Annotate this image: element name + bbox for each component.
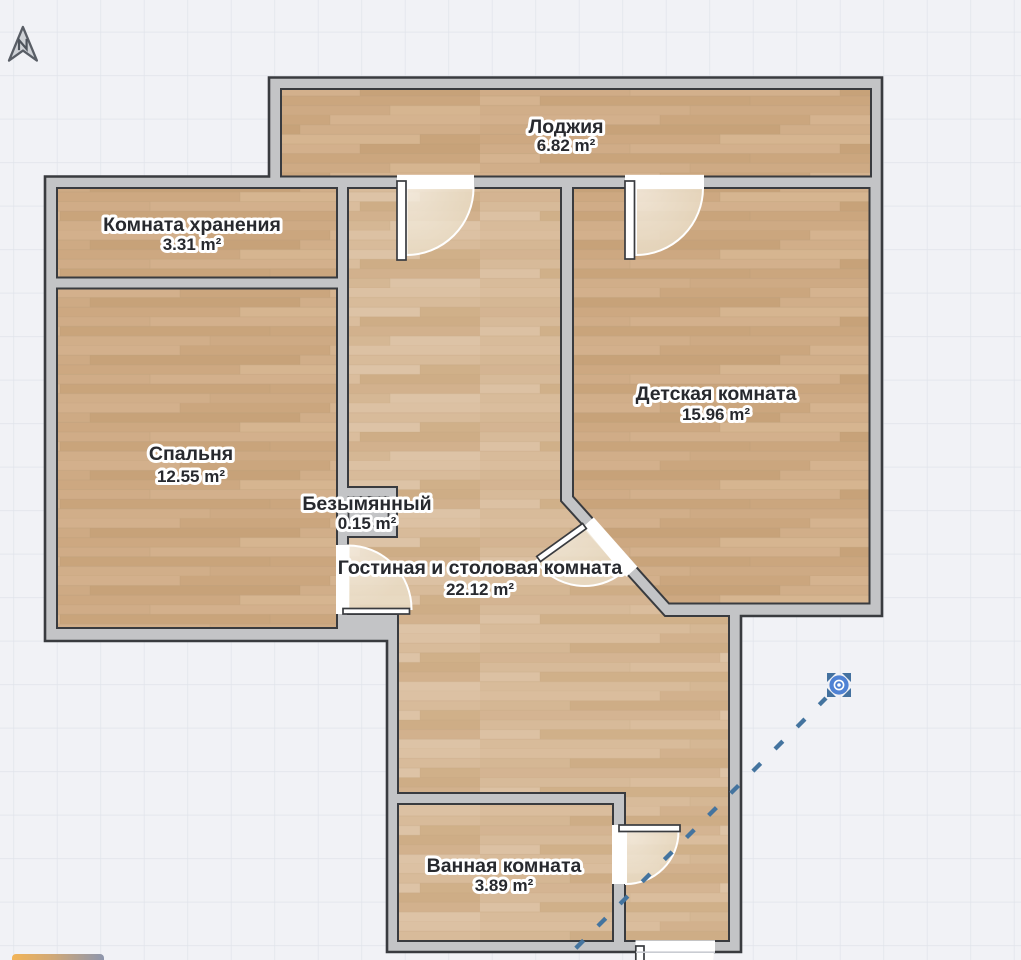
svg-text:0.15 m²: 0.15 m² — [338, 514, 397, 533]
svg-text:Безымянный: Безымянный — [302, 493, 431, 515]
svg-text:Комната хранения: Комната хранения — [103, 214, 281, 236]
svg-text:12.55 m²: 12.55 m² — [157, 467, 225, 486]
svg-text:Гостиная и столовая комната: Гостиная и столовая комната — [338, 557, 623, 579]
svg-text:22.12 m²: 22.12 m² — [446, 580, 514, 599]
svg-text:3.31 m²: 3.31 m² — [163, 235, 222, 254]
svg-text:Спальня: Спальня — [149, 443, 233, 465]
svg-text:Детская комната: Детская комната — [636, 383, 797, 405]
svg-text:15.96 m²: 15.96 m² — [682, 405, 750, 424]
svg-text:6.82 m²: 6.82 m² — [537, 136, 596, 155]
svg-text:Лоджия: Лоджия — [529, 116, 604, 138]
svg-text:3.89 m²: 3.89 m² — [475, 876, 534, 895]
svg-text:Ванная комната: Ванная комната — [427, 855, 582, 877]
